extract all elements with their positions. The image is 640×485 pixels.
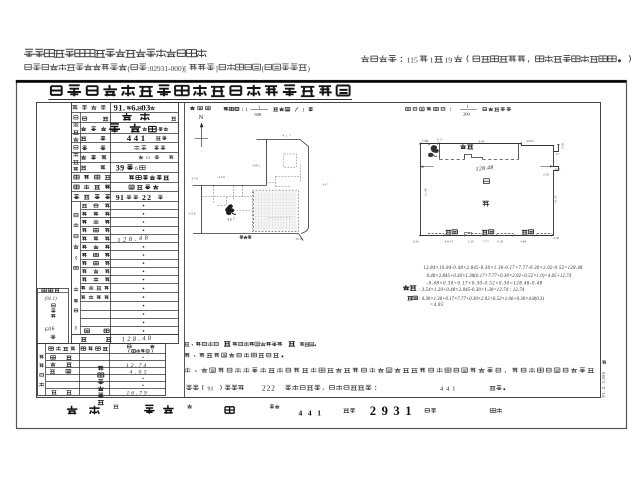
svg-text:-0.48×0.30+0.17×0.30-0.52×0.30: -0.48×0.30+0.17×0.30-0.52×0.30=128.48-0.… [427,282,543,287]
svg-text:91.: 91. [114,103,126,113]
svg-text:222: 222 [262,385,276,393]
svg-text:1: 1 [467,104,469,109]
svg-text:N: N [199,114,204,121]
svg-text:=4.05: =4.05 [430,303,444,308]
svg-text:41-7: 41-7 [323,183,329,187]
svg-text:426: 426 [189,212,197,216]
svg-text:441: 441 [127,133,148,143]
svg-text:91: 91 [116,193,124,202]
svg-text:91: 91 [208,386,214,392]
svg-text:22: 22 [142,193,152,202]
svg-text:12.84×10.84-0.48×2.845-0.30×1.: 12.84×10.84-0.48×2.845-0.30×1.30-0.17×7.… [423,266,583,271]
svg-text:2931: 2931 [370,404,417,418]
svg-text:440: 440 [218,175,226,179]
svg-text:6: 6 [135,166,138,172]
svg-text:467: 467 [227,216,236,222]
svg-text:14.30: 14.30 [554,195,558,203]
svg-text:1: 1 [258,104,260,109]
svg-text:30-18: 30-18 [295,237,303,241]
svg-text:4.642: 4.642 [526,139,534,143]
svg-text:0.7: 0.7 [556,152,560,156]
svg-text:417: 417 [283,134,293,138]
svg-text:0.30: 0.30 [543,173,549,177]
svg-text:1.30: 1.30 [468,239,474,243]
svg-text:12.48: 12.48 [423,188,427,196]
svg-text:39: 39 [116,163,125,172]
svg-text:12: 12 [146,155,151,160]
svg-text:7.77: 7.77 [483,239,489,243]
svg-text:200: 200 [463,111,471,116]
svg-text:441: 441 [299,408,327,417]
svg-text:4.30: 4.30 [553,236,559,240]
svg-text:03: 03 [141,103,150,113]
svg-text:115: 115 [407,56,419,65]
svg-text:439-1: 439-1 [253,164,261,168]
svg-text:441: 441 [440,385,458,392]
svg-text::02931-000)[: :02931-000)[ [148,64,188,73]
svg-text:: 0.30×1.30+0.17×7.77+0.30×2.0: : 0.30×1.30+0.17×7.77+0.30×2.02+0.52×1.0… [419,297,545,302]
svg-text:0.60: 0.60 [422,139,428,143]
svg-text:12.74: 12.74 [126,363,148,369]
svg-text:6.: 6. [131,103,137,113]
svg-text:4.8-17: 4.8-17 [445,240,454,244]
svg-text:0.48×2.845+0.30×1.30(0.17×7.77: 0.48×2.845+0.30×1.30(0.17×7.77+0.30×2.02… [427,274,572,279]
svg-text:0.30: 0.30 [497,239,503,243]
svg-text:4.84: 4.84 [520,239,526,243]
svg-text:0.60: 0.60 [560,143,564,149]
svg-text:(91.1): (91.1) [45,297,57,302]
svg-text:2.02: 2.02 [555,167,561,171]
svg-text:16.79: 16.79 [127,391,149,397]
svg-text:4.05: 4.05 [130,370,149,376]
svg-text:0.17: 0.17 [437,138,443,142]
svg-text:]: ] [215,64,217,73]
svg-text:500: 500 [254,112,262,117]
svg-text:: 3.54×1.20+0.48×2.845-0.30×1.: : 3.54×1.20+0.48×2.845-0.30×1.30=12.74 :… [419,288,525,293]
svg-text:439: 439 [192,176,200,180]
svg-text:0.30: 0.30 [413,239,419,243]
svg-text:6.84: 6.84 [479,140,485,144]
svg-text:19: 19 [444,56,452,65]
svg-text:1: 1 [430,56,434,65]
